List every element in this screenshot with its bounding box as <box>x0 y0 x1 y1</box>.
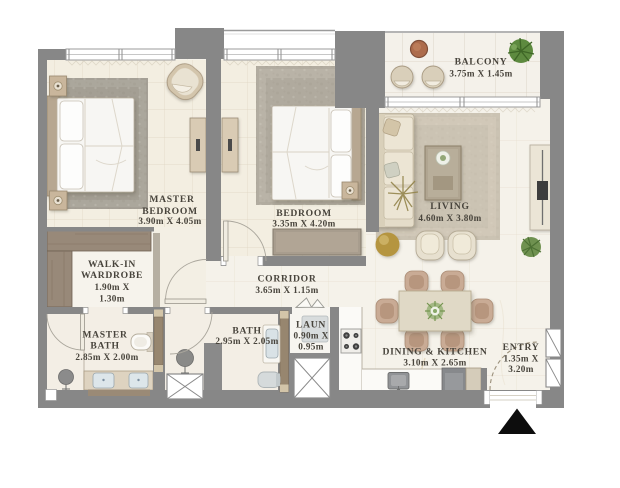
svg-text:1.35m X: 1.35m X <box>503 354 538 364</box>
svg-text:2.85m X 2.00m: 2.85m X 2.00m <box>75 352 138 362</box>
svg-text:DINING & KITCHEN: DINING & KITCHEN <box>382 347 487 358</box>
svg-text:2.95m X 2.05m: 2.95m X 2.05m <box>215 336 278 346</box>
svg-text:WARDROBE: WARDROBE <box>81 270 143 281</box>
svg-text:MASTER: MASTER <box>149 194 195 205</box>
svg-text:WALK-IN: WALK-IN <box>88 259 136 270</box>
svg-text:BEDROOM: BEDROOM <box>276 208 332 219</box>
svg-text:MASTER: MASTER <box>82 330 128 341</box>
svg-text:3.20m: 3.20m <box>508 364 533 374</box>
svg-text:0.95m: 0.95m <box>298 342 323 352</box>
svg-text:LIVING: LIVING <box>430 201 469 212</box>
svg-text:3.35m X 4.20m: 3.35m X 4.20m <box>272 219 335 229</box>
svg-text:1.90m X: 1.90m X <box>94 282 129 292</box>
svg-text:BATH: BATH <box>90 341 119 352</box>
svg-text:0.90m X: 0.90m X <box>293 331 328 341</box>
svg-text:1.30m: 1.30m <box>99 294 124 304</box>
svg-text:ENTRY: ENTRY <box>503 342 540 353</box>
svg-text:3.90m X 4.05m: 3.90m X 4.05m <box>138 216 201 226</box>
svg-text:LAUN: LAUN <box>296 320 326 331</box>
svg-text:3.65m X 1.15m: 3.65m X 1.15m <box>255 285 318 295</box>
svg-text:BALCONY: BALCONY <box>455 57 508 68</box>
svg-text:3.10m X 2.65m: 3.10m X 2.65m <box>403 358 466 368</box>
svg-text:4.60m X 3.80m: 4.60m X 3.80m <box>418 213 481 223</box>
svg-text:CORRIDOR: CORRIDOR <box>258 274 317 285</box>
svg-text:3.75m X 1.45m: 3.75m X 1.45m <box>449 69 512 79</box>
svg-text:BATH: BATH <box>232 326 261 337</box>
